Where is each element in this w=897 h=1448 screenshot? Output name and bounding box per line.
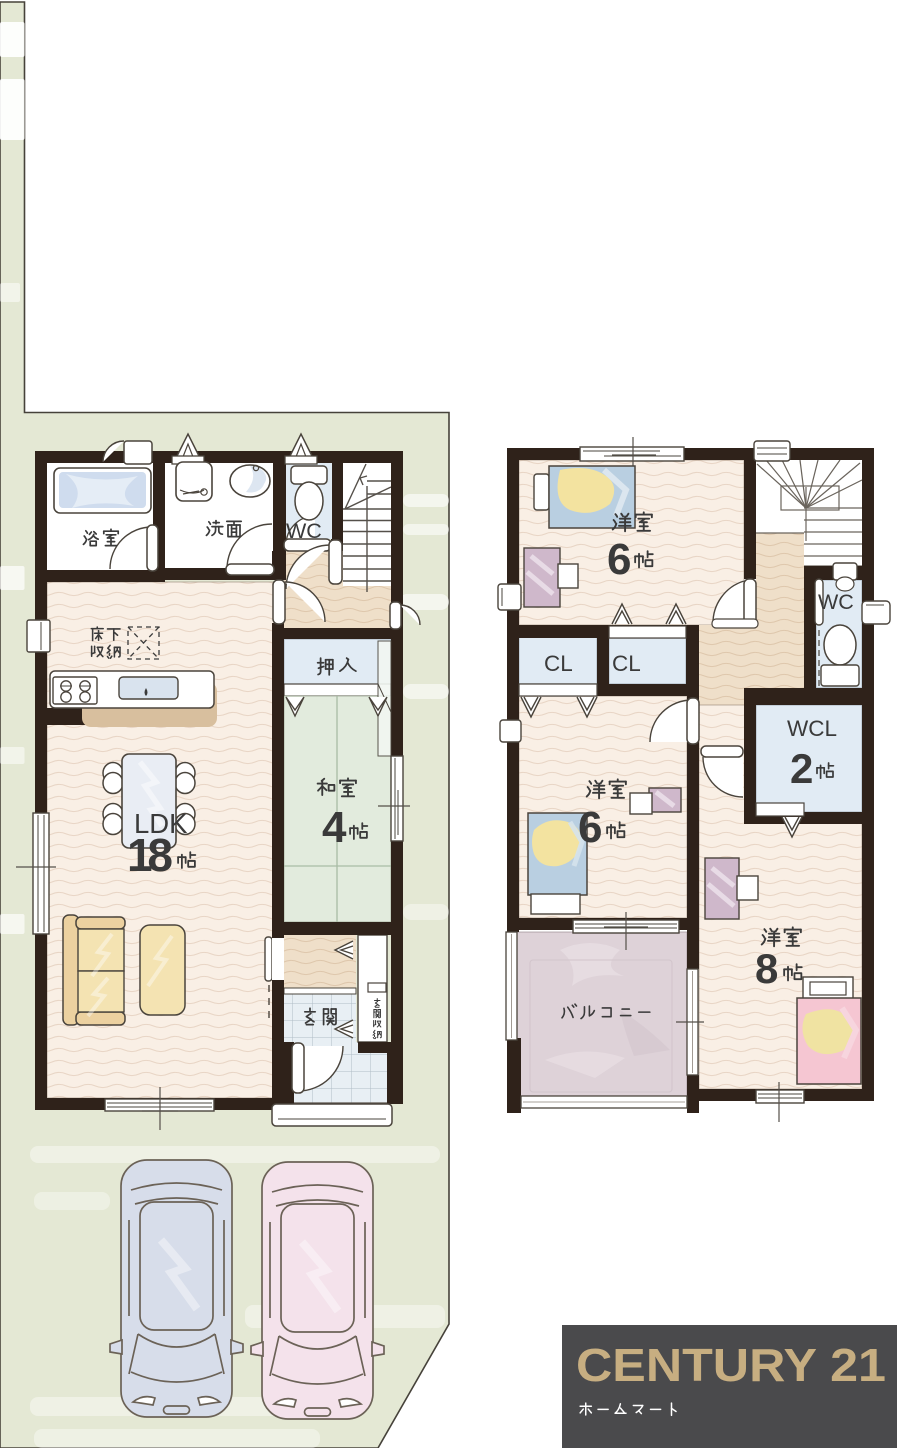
svg-text:CENTURY 21: CENTURY 21 bbox=[576, 1339, 886, 1391]
svg-text:WCL: WCL bbox=[787, 716, 837, 741]
svg-text:CL: CL bbox=[544, 651, 573, 676]
svg-text:2: 2 bbox=[790, 745, 813, 792]
svg-text:18: 18 bbox=[127, 829, 173, 881]
svg-text:WC: WC bbox=[818, 590, 854, 614]
svg-text:CL: CL bbox=[612, 651, 641, 676]
svg-text:6: 6 bbox=[578, 803, 602, 852]
svg-text:8: 8 bbox=[755, 945, 778, 992]
svg-text:4: 4 bbox=[322, 803, 347, 852]
svg-text:6: 6 bbox=[607, 535, 631, 584]
svg-text:WC: WC bbox=[286, 519, 322, 543]
